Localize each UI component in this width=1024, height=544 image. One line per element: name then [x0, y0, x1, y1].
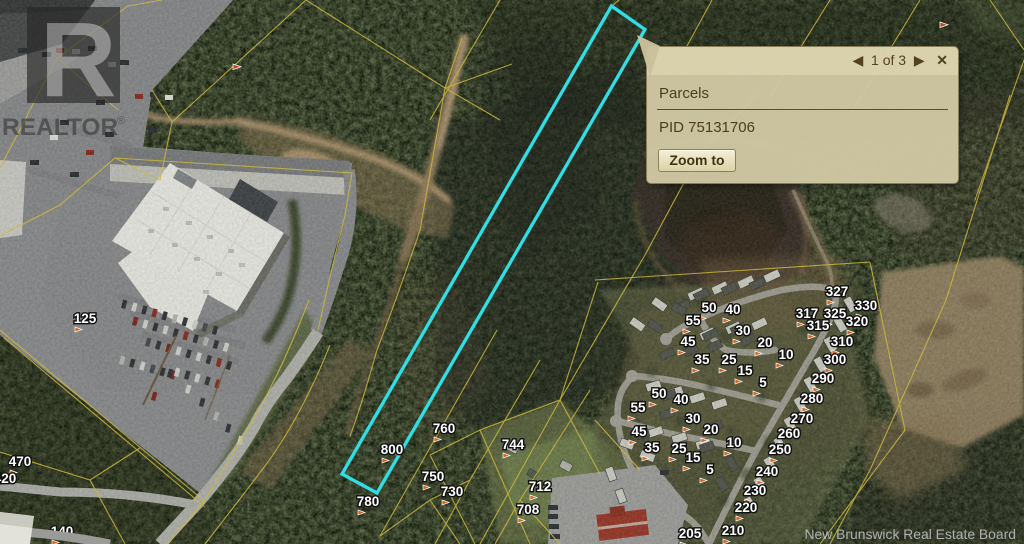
- svg-text:760: 760: [433, 421, 456, 436]
- svg-text:300: 300: [824, 352, 847, 367]
- svg-text:55: 55: [685, 313, 701, 328]
- svg-text:10: 10: [778, 347, 793, 362]
- svg-text:240: 240: [756, 464, 779, 479]
- svg-text:10: 10: [726, 435, 741, 450]
- svg-text:420: 420: [0, 471, 16, 486]
- svg-text:470: 470: [9, 454, 32, 469]
- svg-text:45: 45: [631, 424, 647, 439]
- svg-text:45: 45: [680, 334, 696, 349]
- svg-text:210: 210: [722, 523, 745, 538]
- svg-text:30: 30: [685, 411, 700, 426]
- svg-text:250: 250: [769, 442, 792, 457]
- svg-text:280: 280: [801, 391, 824, 406]
- svg-text:315: 315: [807, 318, 830, 333]
- svg-text:744: 744: [502, 437, 525, 452]
- svg-text:25: 25: [721, 352, 737, 367]
- svg-text:50: 50: [651, 386, 666, 401]
- svg-text:290: 290: [812, 371, 835, 386]
- svg-text:780: 780: [357, 494, 380, 509]
- svg-text:40: 40: [725, 302, 740, 317]
- svg-text:55: 55: [630, 400, 646, 415]
- svg-text:R: R: [40, 1, 117, 119]
- svg-text:230: 230: [744, 483, 767, 498]
- svg-text:20: 20: [757, 335, 772, 350]
- svg-text:20: 20: [703, 422, 718, 437]
- svg-text:30: 30: [735, 323, 750, 338]
- svg-text:310: 310: [831, 334, 854, 349]
- svg-text:327: 327: [826, 284, 849, 299]
- svg-text:125: 125: [74, 311, 97, 326]
- svg-text:260: 260: [778, 426, 801, 441]
- svg-text:35: 35: [694, 352, 710, 367]
- svg-text:®: ®: [117, 115, 125, 127]
- svg-text:5: 5: [706, 462, 714, 477]
- svg-text:712: 712: [529, 479, 552, 494]
- svg-text:50: 50: [701, 300, 716, 315]
- svg-text:40: 40: [673, 392, 688, 407]
- svg-text:5: 5: [759, 375, 767, 390]
- svg-text:220: 220: [735, 500, 758, 515]
- svg-text:205: 205: [679, 526, 702, 541]
- svg-text:270: 270: [791, 411, 814, 426]
- svg-text:320: 320: [846, 314, 869, 329]
- svg-text:330: 330: [855, 298, 878, 313]
- svg-text:35: 35: [644, 440, 660, 455]
- svg-text:15: 15: [685, 450, 701, 465]
- svg-text:800: 800: [381, 442, 404, 457]
- svg-text:15: 15: [737, 363, 753, 378]
- svg-text:New Brunswick Real Estate Boar: New Brunswick Real Estate Board: [804, 526, 1016, 542]
- svg-text:708: 708: [517, 502, 540, 517]
- svg-text:730: 730: [441, 484, 464, 499]
- svg-text:750: 750: [422, 469, 445, 484]
- svg-text:REALTOR: REALTOR: [2, 114, 118, 141]
